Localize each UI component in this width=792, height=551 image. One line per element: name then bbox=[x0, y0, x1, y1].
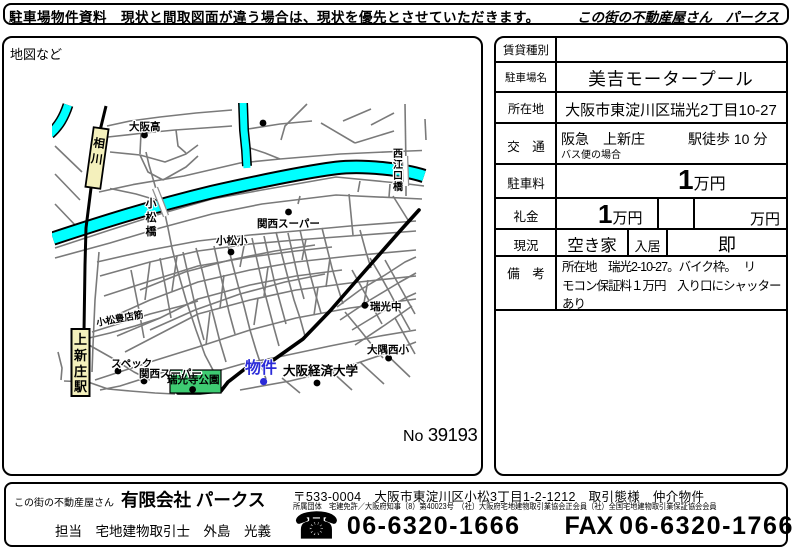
svg-text:大阪経済大学: 大阪経済大学 bbox=[283, 363, 359, 378]
svg-text:口: 口 bbox=[393, 171, 403, 182]
svg-text:駅: 駅 bbox=[73, 379, 88, 394]
svg-text:小: 小 bbox=[145, 196, 157, 210]
svg-text:西: 西 bbox=[393, 148, 403, 160]
svg-text:小松小: 小松小 bbox=[215, 234, 248, 247]
svg-text:新: 新 bbox=[73, 348, 87, 363]
svg-text:物件: 物件 bbox=[245, 358, 277, 377]
svg-text:大隅西小: 大隅西小 bbox=[367, 343, 409, 356]
svg-text:庄: 庄 bbox=[74, 364, 87, 379]
svg-text:川: 川 bbox=[89, 152, 103, 167]
svg-text:江: 江 bbox=[393, 158, 403, 171]
svg-text:瑞光寺公園: 瑞光寺公園 bbox=[167, 373, 220, 386]
svg-text:橋: 橋 bbox=[146, 224, 158, 238]
svg-text:大阪高: 大阪高 bbox=[129, 120, 161, 133]
svg-text:松: 松 bbox=[146, 210, 157, 224]
svg-text:関西スーパー: 関西スーパー bbox=[257, 218, 320, 230]
svg-text:瑞光中: 瑞光中 bbox=[370, 300, 402, 313]
svg-text:上: 上 bbox=[74, 332, 87, 347]
svg-text:橋: 橋 bbox=[393, 180, 404, 193]
